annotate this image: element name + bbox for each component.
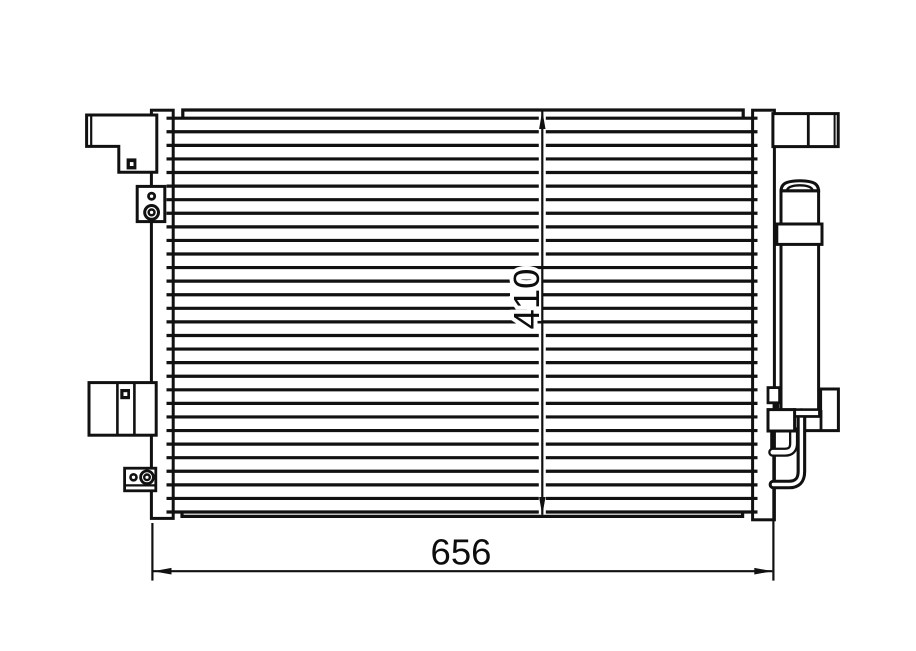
svg-text:410: 410 <box>506 269 547 330</box>
svg-text:656: 656 <box>431 532 492 573</box>
